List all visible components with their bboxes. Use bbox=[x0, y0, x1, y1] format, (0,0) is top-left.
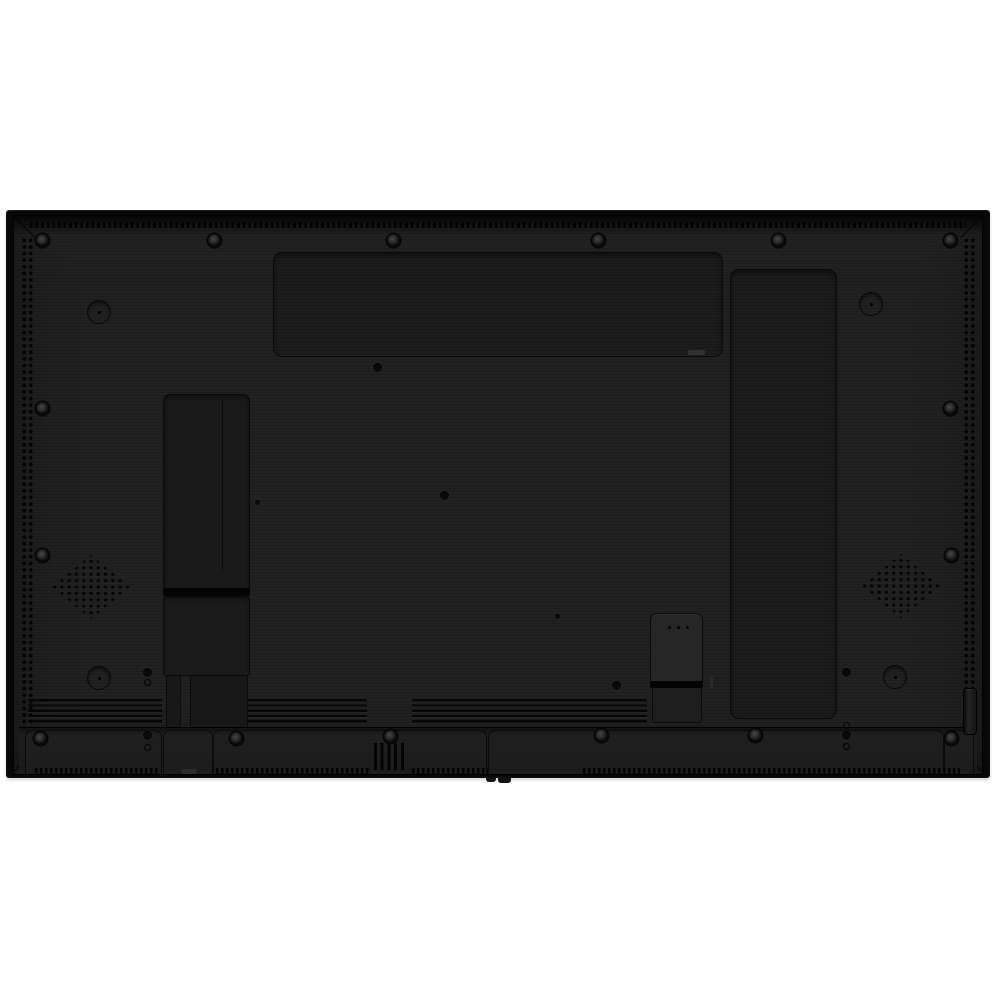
recess-circle-bottom-right bbox=[883, 665, 907, 689]
screw bbox=[36, 402, 49, 415]
bottom-perf-1 bbox=[35, 768, 160, 774]
channel-inner-line bbox=[222, 400, 223, 570]
product-photo-rear-of-display bbox=[0, 0, 1000, 1000]
right-module-bay bbox=[730, 269, 837, 719]
connector-dot-1 bbox=[668, 626, 671, 629]
screw bbox=[230, 732, 243, 745]
bottom-foot bbox=[486, 777, 496, 782]
module-bay-slot bbox=[688, 350, 705, 355]
screw-hole bbox=[143, 731, 152, 740]
connector-dot-3 bbox=[686, 626, 689, 629]
screw bbox=[944, 234, 957, 247]
alignment-hole bbox=[843, 722, 850, 729]
connector-groove bbox=[650, 681, 703, 688]
screw bbox=[36, 549, 49, 562]
band-section-b bbox=[163, 730, 213, 774]
channel-groove bbox=[163, 588, 250, 596]
pin-hole bbox=[255, 500, 260, 505]
recess-circle-top-left bbox=[87, 300, 111, 324]
screw bbox=[384, 730, 397, 743]
bottom-foot bbox=[498, 777, 511, 783]
channel-leg-right bbox=[190, 676, 248, 728]
service-tab bbox=[181, 769, 197, 774]
alignment-hole bbox=[144, 679, 151, 686]
screw-hole bbox=[612, 681, 621, 690]
left-edge-vent bbox=[20, 236, 33, 764]
screw bbox=[749, 729, 762, 742]
recess-circle-bottom-left bbox=[87, 666, 111, 690]
vent-slats-right bbox=[412, 699, 647, 725]
screw bbox=[945, 732, 958, 745]
vent-slats-middle bbox=[248, 699, 367, 725]
top-vent-strip bbox=[30, 222, 966, 228]
connector-bay-upper bbox=[650, 613, 703, 682]
screw bbox=[945, 549, 958, 562]
cable-channel-upper bbox=[163, 394, 250, 590]
cable-channel-lower bbox=[163, 596, 250, 676]
top-module-bay bbox=[273, 252, 723, 357]
bottom-perf-3 bbox=[412, 768, 488, 774]
handle-recess bbox=[963, 688, 977, 735]
screw bbox=[208, 234, 221, 247]
screw bbox=[944, 402, 957, 415]
screw bbox=[36, 234, 49, 247]
channel-leg-left bbox=[166, 676, 181, 728]
alignment-hole bbox=[144, 744, 151, 751]
vent-slats-left bbox=[28, 699, 162, 725]
connector-bay-lower bbox=[652, 688, 702, 723]
screw bbox=[595, 729, 608, 742]
side-slot bbox=[710, 676, 713, 689]
connector-dot-2 bbox=[677, 626, 680, 629]
screw-hole bbox=[440, 491, 449, 500]
right-edge-vent bbox=[962, 236, 975, 764]
screw bbox=[772, 234, 785, 247]
screw bbox=[592, 234, 605, 247]
screw-hole bbox=[373, 363, 382, 372]
bottom-vertical-slots bbox=[374, 743, 407, 770]
screw-hole bbox=[842, 668, 851, 677]
screw bbox=[34, 732, 47, 745]
alignment-hole bbox=[843, 743, 850, 750]
screw-hole bbox=[842, 731, 851, 740]
screw-hole bbox=[143, 668, 152, 677]
pin-hole bbox=[555, 614, 560, 619]
recess-circle-top-right bbox=[859, 292, 883, 316]
screw bbox=[387, 234, 400, 247]
bottom-perf-2 bbox=[216, 768, 371, 774]
bottom-perf-4 bbox=[583, 768, 960, 774]
